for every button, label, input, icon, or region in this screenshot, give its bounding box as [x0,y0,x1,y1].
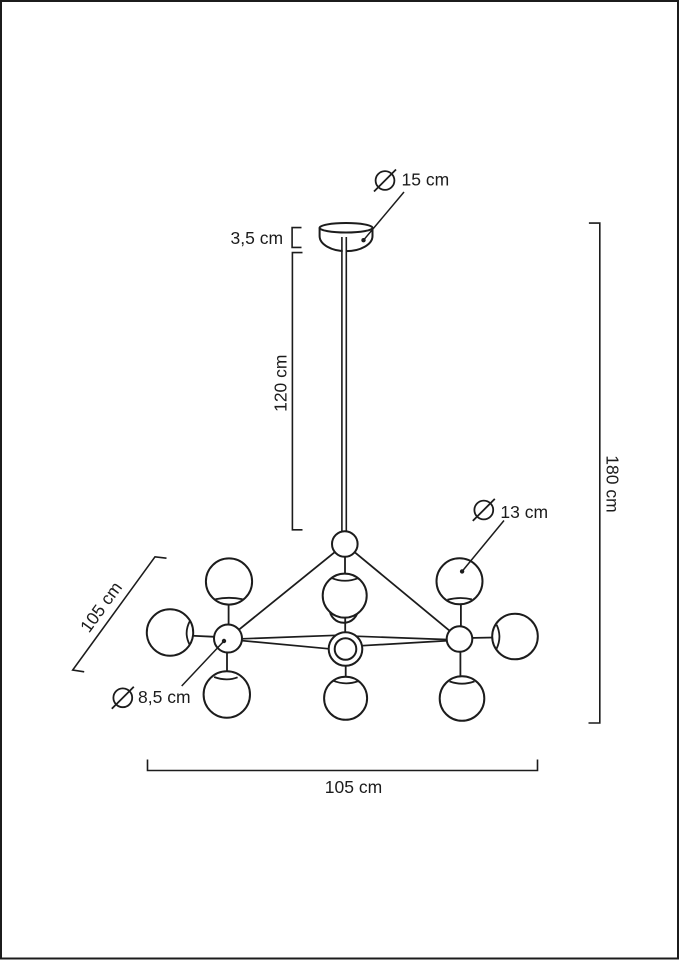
svg-text:3,5 cm: 3,5 cm [231,228,284,248]
svg-text:180 cm: 180 cm [603,455,623,512]
svg-text:15 cm: 15 cm [402,169,450,189]
svg-text:13 cm: 13 cm [500,502,548,522]
svg-text:120 cm: 120 cm [271,355,291,412]
svg-text:8,5 cm: 8,5 cm [138,687,191,707]
svg-text:105 cm: 105 cm [325,777,382,797]
